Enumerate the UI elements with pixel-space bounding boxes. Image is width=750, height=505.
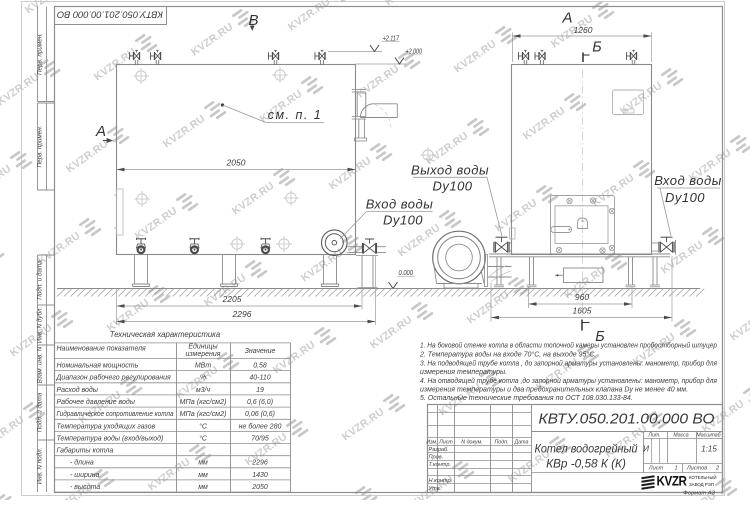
svg-text:А: А — [95, 123, 106, 140]
svg-text:м3/ч: м3/ч — [196, 387, 211, 394]
svg-text:ЗАВОД РЭП: ЗАВОД РЭП — [689, 482, 714, 487]
svg-text:Дата: Дата — [514, 440, 529, 446]
svg-text:0,6 (6,0): 0,6 (6,0) — [247, 399, 273, 406]
svg-text:Пров.: Пров. — [429, 455, 444, 461]
svg-text:И: И — [643, 445, 649, 454]
svg-text:Лит.: Лит. — [647, 433, 660, 439]
svg-text:40-110: 40-110 — [249, 375, 270, 382]
svg-text:- ширина: - ширина — [70, 472, 100, 479]
svg-text:1430: 1430 — [252, 472, 268, 479]
svg-text:Масштаб: Масштаб — [696, 433, 721, 439]
svg-text:960: 960 — [575, 292, 589, 302]
svg-text:2050: 2050 — [226, 158, 246, 168]
svg-text:Формат А3: Формат А3 — [683, 491, 715, 497]
svg-text:Т.контр.: Т.контр. — [429, 462, 452, 468]
svg-text:1605: 1605 — [573, 306, 592, 316]
svg-text:2050: 2050 — [251, 484, 268, 491]
svg-text:КВТУ.050.201.00.000 ВО: КВТУ.050.201.00.000 ВО — [539, 412, 716, 428]
svg-text:Инв. N подл.: Инв. N подл. — [36, 448, 44, 485]
svg-text:Перв. примен.: Перв. примен. — [37, 126, 44, 168]
svg-text:- высота: - высота — [70, 484, 100, 491]
svg-text:0,06 (0,6): 0,06 (0,6) — [245, 411, 275, 418]
svg-text:Гидравлическое сопротивление к: Гидравлическое сопротивление котла — [57, 410, 174, 418]
svg-text:Температура уходящих газов: Температура уходящих газов — [57, 422, 156, 430]
svg-text:Б: Б — [595, 329, 604, 345]
svg-text:Лист: Лист — [438, 440, 453, 446]
svg-text:Номинальная мощность: Номинальная мощность — [57, 363, 139, 370]
svg-text:Выход воды: Выход воды — [411, 163, 489, 178]
svg-text:Инв. N дубл.: Инв. N дубл. — [36, 307, 44, 343]
svg-text:5. Остальные технические треб: 5. Остальные технические требования по О… — [420, 394, 633, 402]
svg-text:Расход воды: Расход воды — [57, 386, 99, 394]
svg-text:Dy100: Dy100 — [432, 179, 472, 194]
svg-text:измерения: измерения — [185, 351, 220, 358]
svg-text:%: % — [200, 375, 206, 382]
svg-text:Утв.: Утв. — [428, 486, 442, 492]
svg-text:МВт: МВт — [195, 363, 212, 370]
svg-text:Техническая характеристика: Техническая характеристика — [110, 330, 221, 339]
svg-text:Габариты котла: Габариты котла — [57, 447, 114, 455]
svg-text:см. п. 1: см. п. 1 — [268, 108, 323, 122]
svg-text:2. Температура воды на входе: 2. Температура воды на входе 70°С, на вы… — [419, 351, 596, 359]
svg-text:Dy100: Dy100 — [383, 213, 423, 228]
svg-text:0,58: 0,58 — [253, 363, 267, 370]
svg-text:Наименование показателя: Наименование показателя — [57, 345, 147, 352]
svg-text:+2.117: +2.117 — [383, 33, 400, 42]
svg-text:измерения температуры.: измерения температуры. — [420, 369, 507, 376]
svg-text:Взам. инв. N: Взам. инв. N — [37, 346, 44, 383]
svg-text:°С: °С — [199, 434, 208, 442]
svg-text:Масса: Масса — [673, 433, 688, 439]
svg-text:мм: мм — [198, 472, 208, 479]
svg-text:измерения температуры и два пр: измерения температуры и два предохраните… — [420, 385, 688, 393]
svg-text:мм: мм — [198, 484, 208, 491]
svg-text:Лист: Лист — [648, 465, 664, 471]
svg-text:4. На отводящей трубе котла ,: 4. На отводящей трубе котла ,до запорной… — [420, 377, 717, 385]
svg-text:КВТУ.050.201.00.000 ВО: КВТУ.050.201.00.000 ВО — [57, 10, 163, 20]
svg-text:Значение: Значение — [245, 348, 276, 355]
svg-text:Вход воды: Вход воды — [654, 173, 722, 188]
svg-text:2296: 2296 — [251, 460, 268, 467]
svg-text:не более 280: не более 280 — [239, 422, 282, 430]
svg-text:Перв. примен.: Перв. примен. — [37, 33, 44, 75]
svg-text:Рабочее давление воды: Рабочее давление воды — [57, 398, 136, 406]
svg-text:1260: 1260 — [574, 25, 593, 35]
svg-text:Подп. и дата: Подп. и дата — [36, 260, 44, 300]
svg-text:Листов: Листов — [686, 465, 707, 471]
svg-text:3. На подводящей трубе котла: 3. На подводящей трубе котла , до запорн… — [420, 360, 717, 368]
svg-text:°С: °С — [199, 422, 208, 430]
svg-text:А: А — [561, 10, 572, 27]
svg-text:Котел водогрейный: Котел водогрейный — [535, 442, 638, 456]
svg-text:1:15: 1:15 — [701, 445, 717, 454]
svg-text:Вход воды: Вход воды — [366, 197, 434, 212]
svg-text:Единицы: Единицы — [188, 343, 218, 351]
svg-text:Dy100: Dy100 — [665, 190, 705, 205]
svg-text:N докум.: N докум. — [461, 440, 482, 446]
svg-text:мм: мм — [198, 460, 208, 467]
svg-text:KVZR: KVZR — [657, 474, 687, 489]
svg-text:Разраб.: Разраб. — [429, 447, 449, 453]
svg-text:0.000: 0.000 — [399, 268, 414, 277]
svg-text:Изм.: Изм. — [426, 440, 437, 446]
svg-text:- длина: - длина — [70, 459, 94, 467]
svg-text:Б: Б — [592, 40, 601, 56]
svg-text:Температура воды (вход/выход): Температура воды (вход/выход) — [57, 434, 164, 442]
svg-text:+2.000: +2.000 — [406, 47, 423, 56]
svg-text:Подп. и дата: Подп. и дата — [36, 392, 44, 432]
svg-text:Н.контр.: Н.контр. — [429, 478, 453, 484]
svg-text:70/95: 70/95 — [251, 435, 269, 442]
svg-text:2296: 2296 — [232, 309, 252, 319]
svg-text:19: 19 — [256, 387, 264, 394]
svg-text:1: 1 — [674, 465, 677, 471]
svg-text:МПа (кгс/см2): МПа (кгс/см2) — [180, 411, 227, 418]
svg-text:КВр -0,58 К (К): КВр -0,58 К (К) — [546, 457, 626, 471]
svg-text:КОТЕЛЬНЫЙ: КОТЕЛЬНЫЙ — [689, 475, 717, 480]
svg-text:МПа (кгс/см2): МПа (кгс/см2) — [180, 399, 227, 406]
svg-text:2205: 2205 — [222, 294, 242, 304]
svg-text:Диапазон рабочего регулировани: Диапазон рабочего регулирования — [56, 374, 172, 382]
svg-text:1. На боковой стенке котла в: 1. На боковой стенке котла в области топ… — [420, 342, 717, 350]
svg-text:Подп.: Подп. — [494, 440, 508, 446]
